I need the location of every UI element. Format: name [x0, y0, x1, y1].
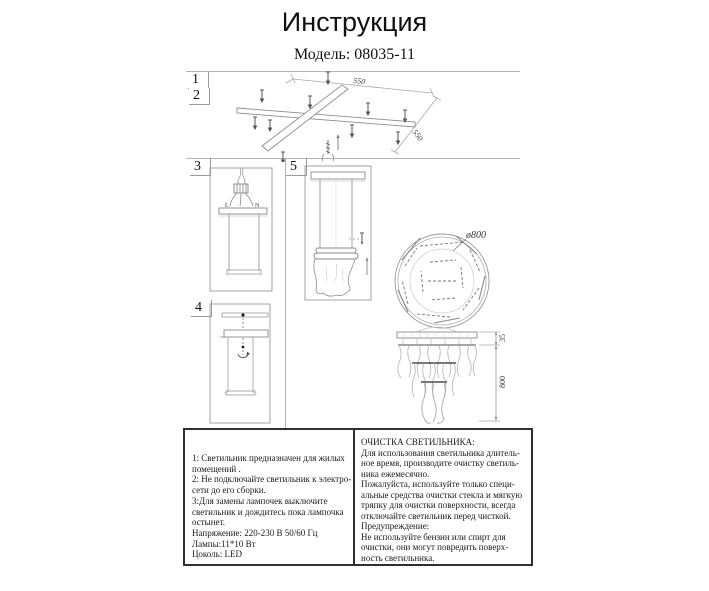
top-view-diagram: ø800 [390, 226, 510, 334]
care-line: ОЧИСТКА СВЕТИЛЬНИКА: [361, 437, 529, 448]
glass-tier-3 [422, 382, 445, 423]
care-line: отключайте светильник перед чисткой. [361, 511, 529, 522]
care-line: тряпку для очистки поверхности, всегда [361, 500, 529, 511]
note-line: помещений . [192, 464, 351, 475]
ceiling-bar [222, 313, 268, 317]
note-line: Напряжение: 220-230 В 50/60 Гц [192, 528, 351, 539]
step-2-number: 2 [189, 88, 210, 105]
ceiling-plate [397, 332, 477, 338]
canopy-plate [219, 208, 267, 214]
note-line: 3:Для замены лампочек выключите [192, 496, 351, 507]
glass-tier-1 [398, 345, 476, 378]
anchor-detail [322, 134, 339, 161]
wiring-diagram: L N [207, 165, 279, 295]
canopy-gap-label: 35 [498, 334, 507, 342]
bracket-width-label: 550 [353, 76, 366, 86]
canopy-plate [224, 330, 268, 337]
mounting-bracket-diagram: 550 550 [222, 70, 447, 162]
divider-columns [285, 158, 286, 428]
set-screw-detail [349, 233, 364, 245]
care-line: ное время, производите очистку светиль- [361, 458, 529, 469]
frame-mounting-diagram [207, 300, 277, 427]
shade-edges-dashed [402, 242, 480, 317]
glass-shade [314, 259, 355, 296]
step-1-number: 1 [188, 72, 209, 89]
care-line: Для использования светильника длитель- [361, 448, 529, 459]
diameter-label: ø800 [465, 230, 486, 241]
note-line: Цоколь: LED [192, 549, 351, 560]
ceiling-plate [311, 172, 365, 179]
note-line: Лампы:11*10 Вт [192, 539, 351, 550]
care-line: ность светильника. [361, 553, 529, 564]
care-line: альные средства очистки стекла и мягкую [361, 490, 529, 501]
bracket-bar-horizontal [237, 108, 415, 127]
side-view-diagram: 35 800 [383, 320, 510, 432]
care-line: очистки, они могут повредить поверх- [361, 542, 529, 553]
note-line: светильник и дождитесь пока лампочка [192, 507, 351, 518]
care-line: Не используйте бензин или спирт для [361, 532, 529, 543]
note-line: 2: Не подключайте светильник к электро- [192, 474, 351, 485]
note-line: остынет. [192, 517, 351, 528]
glass-tier-2 [412, 363, 455, 398]
care-line: ника ежемесячно. [361, 469, 529, 480]
care-line: Предупреждение: [361, 521, 529, 532]
shade-collar [316, 248, 356, 253]
rotate-arrow-icon [238, 352, 250, 358]
drop-height-label: 800 [498, 376, 507, 388]
note-line: сети до его сборки. [192, 485, 351, 496]
shade-install-diagram [303, 163, 378, 303]
up-arrow-icon [366, 257, 369, 275]
usage-notes: 1: Светильник предназначен для жилых пом… [185, 430, 355, 564]
note-line: 1: Светильник предназначен для жилых [192, 453, 351, 464]
cleaning-notes: ОЧИСТКА СВЕТИЛЬНИКА: Для использования с… [355, 430, 531, 564]
page-title: Инструкция [0, 7, 709, 38]
care-line: Пожалуйста, используйте только специ- [361, 479, 529, 490]
notes-section: 1: Светильник предназначен для жилых пом… [183, 428, 533, 566]
height-dimension: 35 800 [479, 332, 507, 421]
instruction-sheet: Инструкция Модель: 08035-11 1 2 3 4 5 55… [0, 0, 709, 591]
model-number: Модель: 08035-11 [0, 46, 709, 64]
